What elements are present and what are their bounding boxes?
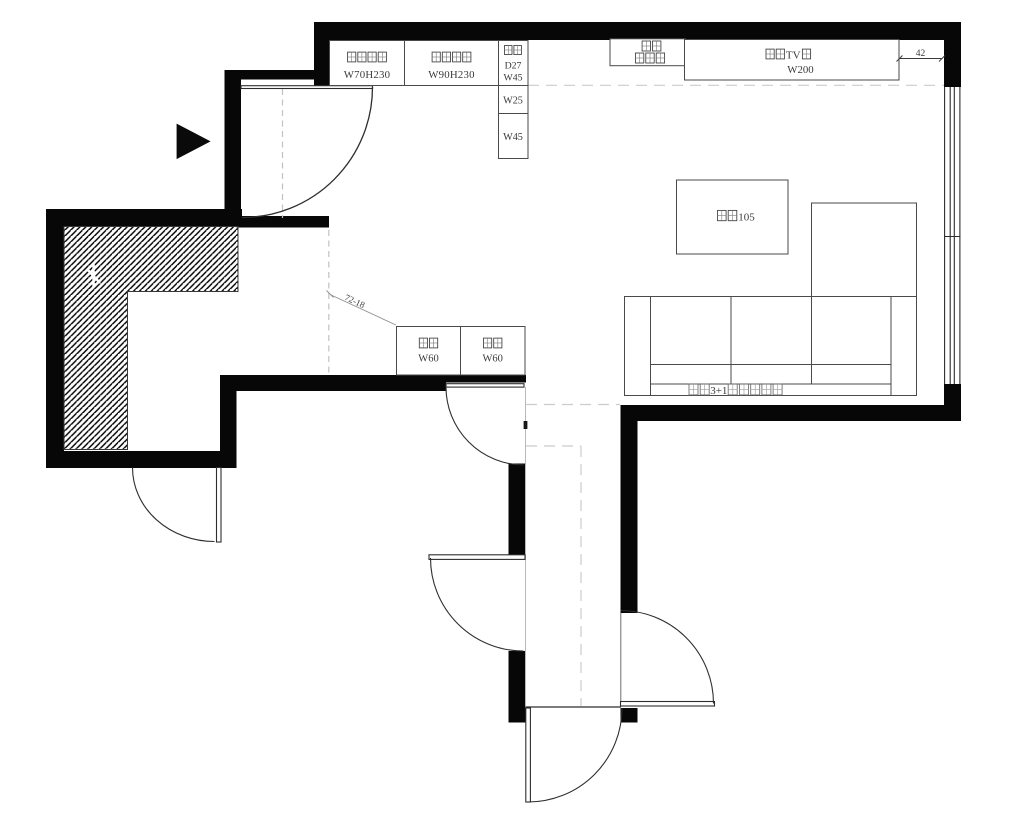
svg-text:W70H230: W70H230 — [344, 69, 390, 81]
svg-text:W60: W60 — [418, 354, 438, 365]
svg-text:42: 42 — [916, 49, 926, 59]
svg-text:W45: W45 — [503, 73, 522, 84]
svg-text:3+1: 3+1 — [710, 385, 727, 397]
svg-text:105: 105 — [738, 212, 755, 224]
svg-text:W200: W200 — [787, 64, 813, 76]
svg-text:TV: TV — [786, 50, 801, 62]
svg-text:W25: W25 — [503, 96, 523, 107]
svg-text:W60: W60 — [482, 354, 502, 365]
svg-text:D27: D27 — [505, 61, 522, 72]
svg-text:W45: W45 — [503, 132, 523, 143]
svg-text:W90H230: W90H230 — [428, 69, 474, 81]
